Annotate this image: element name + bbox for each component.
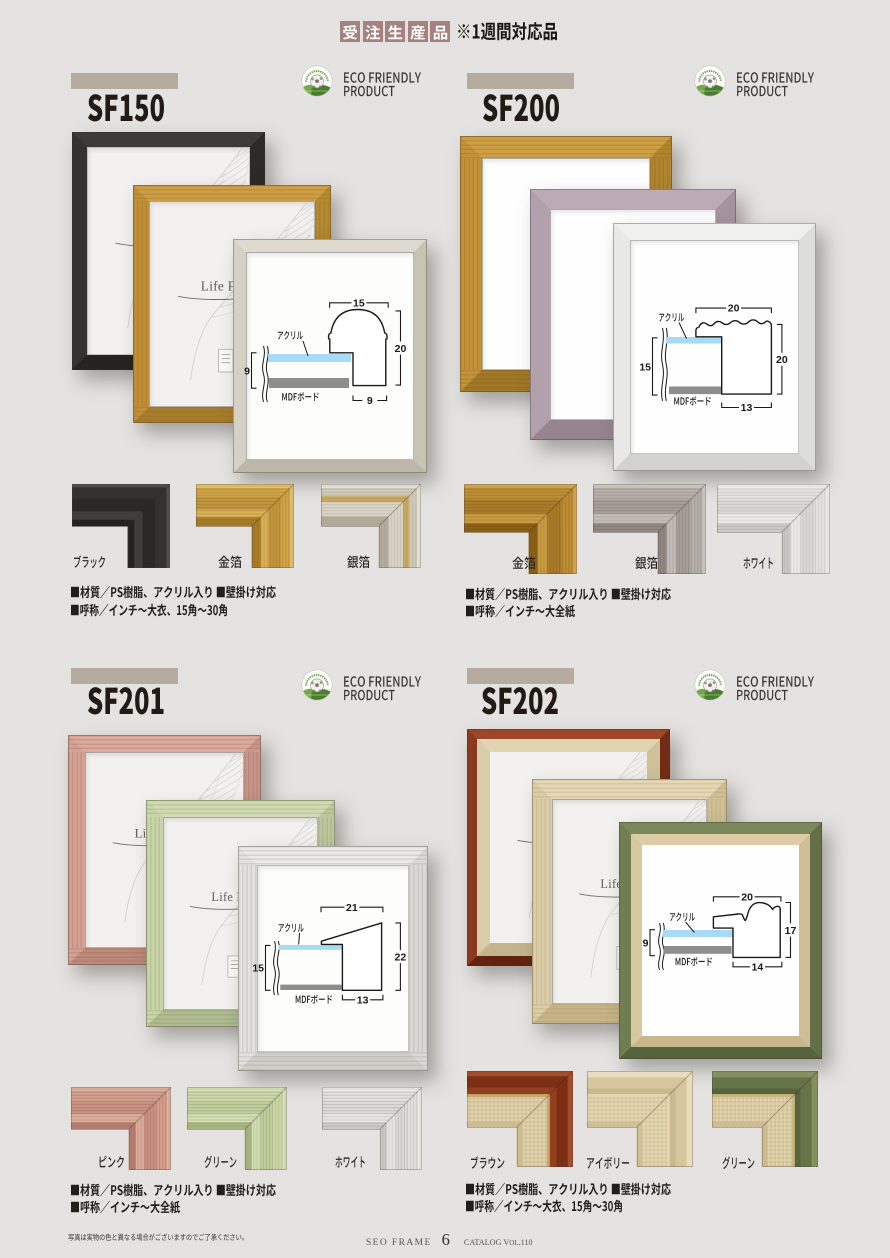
svg-text:9: 9 [643, 938, 649, 950]
svg-text:15: 15 [252, 963, 264, 975]
svg-text:20: 20 [728, 303, 740, 315]
svg-text:13: 13 [741, 402, 753, 414]
svg-text:21: 21 [346, 902, 358, 914]
svg-text:20: 20 [741, 891, 753, 903]
svg-text:14: 14 [752, 961, 764, 973]
svg-text:13: 13 [357, 994, 369, 1006]
svg-text:9: 9 [367, 395, 373, 407]
svg-text:15: 15 [353, 297, 365, 309]
svg-text:20: 20 [776, 354, 788, 366]
svg-text:20: 20 [395, 343, 407, 355]
svg-text:15: 15 [639, 361, 651, 373]
svg-text:9: 9 [244, 365, 250, 377]
svg-text:17: 17 [785, 925, 797, 937]
svg-text:22: 22 [395, 951, 407, 963]
